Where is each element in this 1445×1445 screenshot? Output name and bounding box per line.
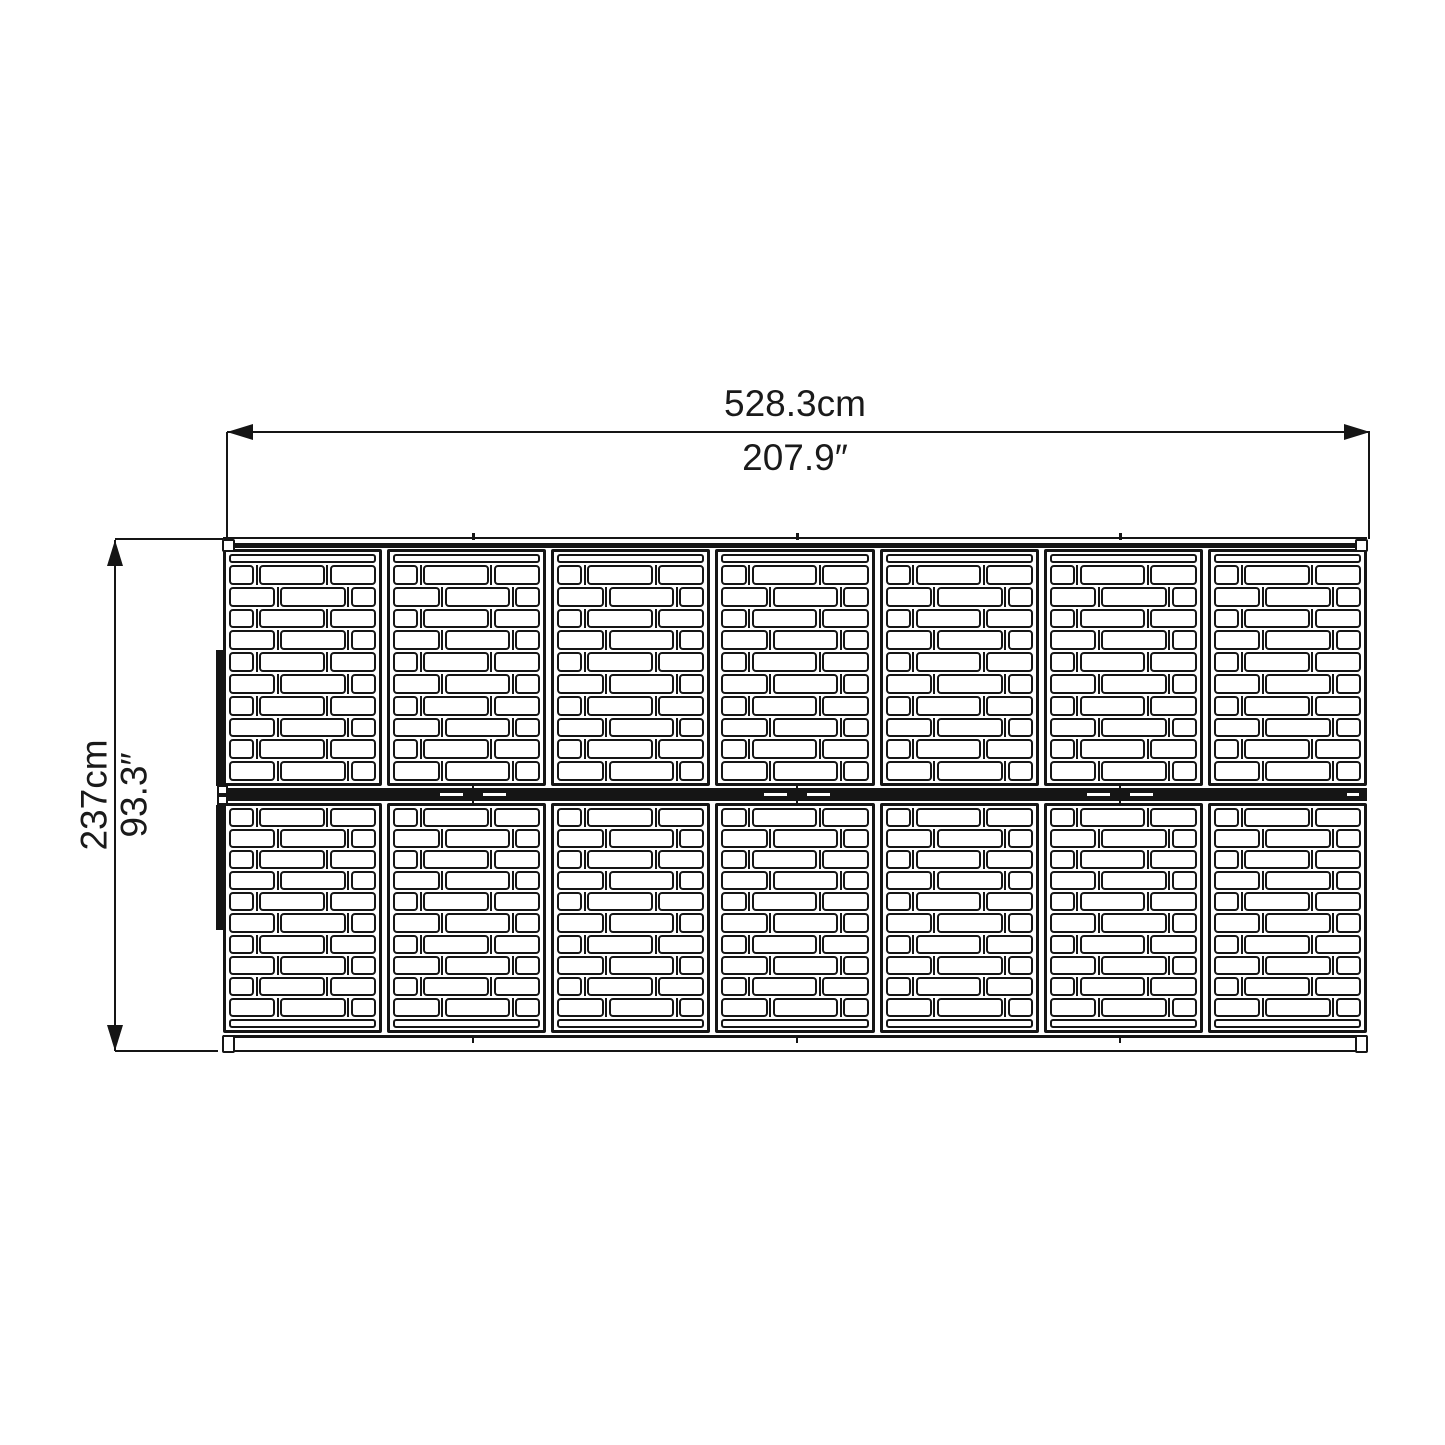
brick-row [1050, 587, 1197, 607]
brick-slat [557, 674, 603, 694]
brick-slat [557, 630, 603, 650]
brick-slat [1050, 829, 1096, 848]
brick-joint-line [1262, 913, 1264, 932]
brick-slat [773, 587, 839, 607]
brick-slat [1214, 718, 1260, 738]
brick-slat [886, 850, 911, 869]
brick-slat [822, 977, 868, 996]
brick-joint-line [605, 871, 607, 890]
brick-joint-line [748, 565, 750, 585]
brick-slat [1050, 630, 1096, 650]
brick-joint-line [1262, 718, 1264, 738]
brick-row [557, 829, 704, 848]
brick-joint-line [347, 718, 349, 738]
brick-slat [351, 913, 376, 932]
brick-slat [393, 913, 439, 932]
brick-slat [393, 935, 418, 954]
brick-joint-line [512, 871, 514, 890]
brick-slat [259, 609, 325, 629]
brick-slat [986, 977, 1032, 996]
brick-row [393, 739, 540, 759]
brick-slat [280, 998, 346, 1017]
brick-row [886, 935, 1033, 954]
brick-slat [1101, 630, 1167, 650]
section-joint-dash [1087, 793, 1110, 796]
brick-slat [557, 652, 582, 672]
brick-gap [747, 977, 752, 996]
brick-slat [1080, 892, 1146, 911]
brick-row [721, 829, 868, 848]
brick-slat [280, 630, 346, 650]
brick-slat [609, 829, 675, 848]
brick-slat [843, 956, 868, 975]
brick-joint-line [983, 977, 985, 996]
brick-slat [916, 652, 982, 672]
brick-gap [1310, 850, 1315, 869]
brick-slat [330, 739, 376, 759]
brick-slat [773, 998, 839, 1017]
section-joint-tick [1119, 533, 1122, 540]
brick-slat [1101, 829, 1167, 848]
brick-slat [886, 587, 932, 607]
brick-slat [557, 739, 582, 759]
brick-joint-line [605, 829, 607, 848]
brick-row [557, 850, 704, 869]
brick-gap [747, 696, 752, 716]
brick-joint-line [1147, 739, 1149, 759]
brick-slat [1150, 892, 1196, 911]
section-joint-tick [472, 1038, 474, 1043]
brick-slat [843, 913, 868, 932]
brick-slat [1150, 935, 1196, 954]
brick-slat [229, 674, 275, 694]
brick-row [721, 696, 868, 716]
brick-row [229, 565, 376, 585]
brick-row [1050, 718, 1197, 738]
brick-slat [445, 587, 511, 607]
brick-slat [986, 935, 1032, 954]
brick-joint-line [256, 977, 258, 996]
brick-slat [609, 913, 675, 932]
brick-joint-line [1311, 935, 1313, 954]
brick-slat [886, 913, 932, 932]
section-joint-tick [1119, 1038, 1121, 1043]
left-edge-connector-block [217, 795, 228, 805]
brick-joint-line [1076, 977, 1078, 996]
brick-gap [1167, 761, 1172, 781]
brick-slat [1008, 871, 1033, 890]
brick-slat [280, 674, 346, 694]
brick-slat [259, 977, 325, 996]
brick-slat [1101, 674, 1167, 694]
brick-gap [747, 808, 752, 827]
brick-slat [886, 871, 932, 890]
brick-slat [937, 956, 1003, 975]
brick-joint-line [933, 587, 935, 607]
brick-joint-line [1311, 652, 1313, 672]
brick-slat [1172, 871, 1197, 890]
brick-slat [494, 652, 540, 672]
brick-slat [1008, 630, 1033, 650]
brick-slat [1101, 761, 1167, 781]
brick-joint-line [655, 892, 657, 911]
brick-slat [423, 696, 489, 716]
brick-joint-line [326, 565, 328, 585]
brick-slat [986, 892, 1032, 911]
brick-joint-line [420, 892, 422, 911]
brick-slat [843, 998, 868, 1017]
brick-slat [1244, 652, 1310, 672]
brick-slat [494, 808, 540, 827]
brick-slat [1214, 761, 1260, 781]
brick-row [1214, 696, 1361, 716]
brick-joint-line [490, 935, 492, 954]
section-joint-tick [472, 533, 475, 540]
width-label-metric: 528.3cm [223, 384, 1367, 425]
brick-joint-line [1241, 739, 1243, 759]
brick-row [557, 998, 704, 1017]
brick-row [721, 652, 868, 672]
brick-slat [557, 956, 603, 975]
brick-joint-line [1098, 913, 1100, 932]
brick-joint-line [1311, 565, 1313, 585]
brick-joint-line [326, 739, 328, 759]
brick-row [1214, 850, 1361, 869]
brick-slat [1008, 718, 1033, 738]
brick-slat [557, 587, 603, 607]
brick-gap [1310, 739, 1315, 759]
brick-joint-line [983, 892, 985, 911]
brick-slat [773, 761, 839, 781]
wall-panel [1208, 803, 1367, 1033]
brick-gap [325, 739, 330, 759]
brick-slat [773, 871, 839, 890]
brick-joint-line [1168, 630, 1170, 650]
brick-joint-line [490, 739, 492, 759]
brick-slat [1265, 871, 1331, 890]
brick-slat [1214, 956, 1260, 975]
brick-slat [1244, 609, 1310, 629]
brick-slat [822, 850, 868, 869]
brick-slat [752, 808, 818, 827]
brick-slat [886, 609, 911, 629]
brick-gap [440, 998, 445, 1017]
brick-slat [1150, 696, 1196, 716]
brick-gap [440, 674, 445, 694]
brick-gap [325, 892, 330, 911]
brick-joint-line [983, 850, 985, 869]
brick-row [1214, 913, 1361, 932]
brick-slat [1214, 674, 1260, 694]
brick-gap [325, 850, 330, 869]
brick-row [1214, 565, 1361, 585]
brick-joint-line [584, 892, 586, 911]
brick-joint-line [676, 913, 678, 932]
brick-slat [330, 565, 376, 585]
brick-row [393, 913, 540, 932]
brick-slat [494, 609, 540, 629]
brick-gap [747, 652, 752, 672]
brick-row [557, 913, 704, 932]
arrow-down-icon [107, 1025, 123, 1051]
brick-slat [587, 652, 653, 672]
brick-slat [1315, 652, 1361, 672]
left-edge-connector-block [217, 785, 228, 795]
brick-slat [330, 850, 376, 869]
brick-slat [1008, 913, 1033, 932]
brick-joint-line [326, 977, 328, 996]
brick-joint-line [326, 609, 328, 629]
brick-slat [937, 871, 1003, 890]
brick-slat [445, 674, 511, 694]
brick-slat [1336, 587, 1361, 607]
brick-joint-line [840, 587, 842, 607]
brick-slat [721, 871, 767, 890]
brick-joint-line [819, 565, 821, 585]
brick-joint-line [441, 630, 443, 650]
brick-slat [843, 871, 868, 890]
brick-slat [280, 956, 346, 975]
brick-joint-line [1004, 913, 1006, 932]
brick-joint-line [605, 998, 607, 1017]
brick-joint-line [1332, 871, 1334, 890]
brick-slat [557, 892, 582, 911]
brick-row [393, 998, 540, 1017]
brick-joint-line [1332, 956, 1334, 975]
height-extension-line-top [115, 538, 223, 540]
brick-gap [440, 956, 445, 975]
brick-slat [351, 674, 376, 694]
brick-slat [1336, 998, 1361, 1017]
wall-panel [223, 549, 382, 786]
brick-joint-line [840, 913, 842, 932]
brick-slat [280, 829, 346, 848]
brick-joint-line [1147, 808, 1149, 827]
brick-slat [259, 739, 325, 759]
brick-slat [916, 850, 982, 869]
brick-joint-line [584, 935, 586, 954]
brick-row [557, 674, 704, 694]
brick-row [1050, 674, 1197, 694]
brick-row [1050, 977, 1197, 996]
brick-joint-line [490, 892, 492, 911]
brick-slat [658, 977, 704, 996]
brick-row [1050, 761, 1197, 781]
brick-joint-line [1332, 630, 1334, 650]
brick-joint-line [1262, 587, 1264, 607]
brick-slat [515, 956, 540, 975]
brick-slat [1244, 808, 1310, 827]
brick-joint-line [420, 739, 422, 759]
brick-joint-line [655, 565, 657, 585]
brick-joint-line [256, 850, 258, 869]
brick-gap [1003, 871, 1008, 890]
brick-joint-line [655, 977, 657, 996]
brick-row [886, 808, 1033, 827]
brick-row [721, 565, 868, 585]
wall-panel [880, 549, 1039, 786]
brick-joint-line [1241, 935, 1243, 954]
brick-slat [557, 977, 582, 996]
brick-slat [393, 956, 439, 975]
brick-gap [604, 998, 609, 1017]
brick-slat [1265, 674, 1331, 694]
brick-slat [721, 609, 746, 629]
brick-joint-line [840, 829, 842, 848]
brick-joint-line [277, 718, 279, 738]
brick-row [1050, 609, 1197, 629]
brick-slat [1265, 913, 1331, 932]
brick-slat [557, 696, 582, 716]
brick-joint-line [1262, 630, 1264, 650]
brick-gap [1003, 761, 1008, 781]
brick-slat [822, 892, 868, 911]
brick-joint-line [1076, 808, 1078, 827]
brick-slat [1050, 696, 1075, 716]
brick-joint-line [912, 739, 914, 759]
brick-row [1214, 977, 1361, 996]
brick-slat [986, 808, 1032, 827]
brick-slat [916, 808, 982, 827]
brick-joint-line [1076, 696, 1078, 716]
brick-joint-line [769, 871, 771, 890]
brick-joint-line [490, 609, 492, 629]
brick-slat [351, 829, 376, 848]
brick-joint-line [1098, 871, 1100, 890]
brick-joint-line [1004, 587, 1006, 607]
brick-joint-line [819, 739, 821, 759]
brick-joint-line [1311, 609, 1313, 629]
brick-row [721, 998, 868, 1017]
brick-row [393, 829, 540, 848]
brick-slat [494, 977, 540, 996]
brick-row [886, 609, 1033, 629]
brick-joint-line [819, 696, 821, 716]
brick-joint-line [347, 913, 349, 932]
top-rail [223, 543, 1367, 548]
panel-cap-strip [721, 554, 868, 563]
brick-row [557, 977, 704, 996]
brick-joint-line [326, 696, 328, 716]
panel-cap-strip [557, 554, 704, 563]
brick-row [1214, 871, 1361, 890]
brick-joint-line [1076, 892, 1078, 911]
brick-slat [886, 977, 911, 996]
brick-slat [1214, 609, 1239, 629]
brick-row [557, 808, 704, 827]
brick-slat [721, 850, 746, 869]
brick-row [721, 871, 868, 890]
brick-gap [325, 652, 330, 672]
brick-row [229, 998, 376, 1017]
brick-row [1050, 829, 1197, 848]
brick-slat [886, 565, 911, 585]
brick-joint-line [1168, 829, 1170, 848]
brick-slat [587, 935, 653, 954]
brick-gap [1167, 956, 1172, 975]
brick-joint-line [1098, 718, 1100, 738]
brick-slat [229, 609, 254, 629]
brick-row [721, 718, 868, 738]
brick-slat [721, 674, 767, 694]
brick-slat [393, 609, 418, 629]
brick-slat [330, 609, 376, 629]
brick-joint-line [490, 696, 492, 716]
brick-joint-line [441, 913, 443, 932]
brick-slat [886, 998, 932, 1017]
brick-slat [1080, 652, 1146, 672]
section-joint-dash [483, 793, 506, 796]
brick-joint-line [983, 652, 985, 672]
brick-slat [423, 808, 489, 827]
brick-slat [916, 892, 982, 911]
brick-slat [351, 718, 376, 738]
brick-slat [557, 913, 603, 932]
brick-slat [1150, 565, 1196, 585]
brick-joint-line [1332, 998, 1334, 1017]
brick-slat [229, 630, 275, 650]
brick-joint-line [420, 696, 422, 716]
brick-slat [1265, 761, 1331, 781]
bottom-rail [223, 1035, 1367, 1052]
brick-joint-line [1004, 674, 1006, 694]
panel-band-top [223, 549, 1367, 786]
brick-row [229, 761, 376, 781]
brick-gap [1310, 892, 1315, 911]
brick-row [393, 674, 540, 694]
brick-slat [587, 565, 653, 585]
brick-slat [515, 718, 540, 738]
brick-slat [229, 871, 275, 890]
brick-slat [886, 935, 911, 954]
brick-joint-line [441, 998, 443, 1017]
brick-slat [752, 892, 818, 911]
brick-slat [587, 609, 653, 629]
brick-slat [1315, 808, 1361, 827]
brick-joint-line [676, 998, 678, 1017]
brick-joint-line [748, 977, 750, 996]
brick-slat [1214, 652, 1239, 672]
arrow-up-icon [107, 540, 123, 566]
brick-joint-line [326, 935, 328, 954]
brick-slat [721, 808, 746, 827]
brick-slat [587, 892, 653, 911]
rail-end-cap [1347, 793, 1359, 796]
brick-slat [1336, 913, 1361, 932]
brick-joint-line [1147, 935, 1149, 954]
brick-slat [609, 761, 675, 781]
panel-cap-strip [557, 1019, 704, 1028]
brick-slat [1050, 850, 1075, 869]
brick-row [721, 850, 868, 869]
brick-slat [679, 998, 704, 1017]
brick-slat [886, 808, 911, 827]
brick-joint-line [819, 808, 821, 827]
brick-slat [393, 850, 418, 869]
brick-slat [1214, 829, 1260, 848]
brick-slat [259, 652, 325, 672]
brick-slat [721, 630, 767, 650]
brick-slat [937, 587, 1003, 607]
brick-row [557, 630, 704, 650]
brick-joint-line [584, 850, 586, 869]
brick-slat [259, 850, 325, 869]
brick-slat [1214, 630, 1260, 650]
brick-joint-line [441, 829, 443, 848]
brick-slat [330, 935, 376, 954]
brick-gap [1167, 829, 1172, 848]
brick-joint-line [769, 956, 771, 975]
